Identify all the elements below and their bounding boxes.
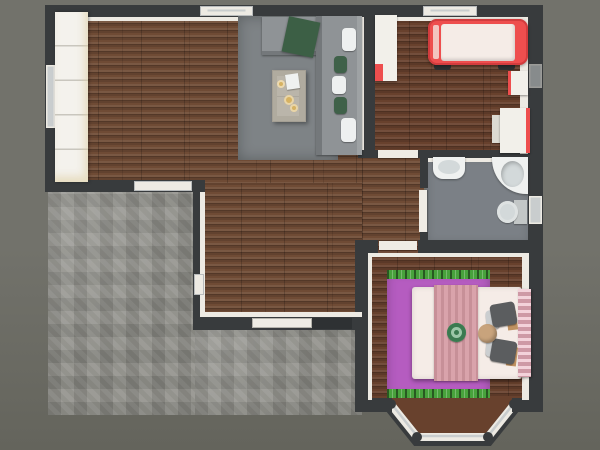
car-bed-windshield bbox=[433, 25, 439, 59]
window-living-west[interactable] bbox=[194, 274, 204, 295]
wall-face-bedroom-north bbox=[368, 253, 522, 257]
wall-hall-bath-north bbox=[420, 150, 428, 188]
wall-face-living-west bbox=[200, 192, 205, 317]
toilet[interactable] bbox=[497, 201, 518, 223]
wall-bedroom-west bbox=[355, 240, 368, 412]
window-top-living-glass bbox=[206, 8, 247, 13]
bed-pillow-dark-1[interactable] bbox=[489, 301, 518, 328]
gold-plate-1[interactable] bbox=[277, 80, 285, 88]
wall-face-living-south bbox=[205, 312, 362, 317]
green-round-decor[interactable] bbox=[447, 323, 466, 342]
car-bed-mattress bbox=[441, 24, 515, 61]
round-cushion[interactable] bbox=[478, 324, 497, 343]
sliding-door-patio-dark-panel[interactable] bbox=[312, 318, 352, 329]
tray[interactable] bbox=[285, 73, 300, 90]
door-master-bedroom[interactable] bbox=[379, 241, 417, 250]
corner-bathtub-basin bbox=[501, 161, 524, 187]
floorplan-scene bbox=[0, 0, 600, 450]
window-top-kids-glass bbox=[429, 8, 471, 13]
sofa-pillow-green-2[interactable] bbox=[334, 97, 347, 114]
door-kids-room[interactable] bbox=[378, 150, 418, 158]
headboard bbox=[518, 289, 531, 377]
bookshelf[interactable] bbox=[55, 12, 88, 182]
sliding-door-patio[interactable] bbox=[252, 318, 312, 328]
door-bathroom[interactable] bbox=[419, 190, 427, 232]
window-left-wall[interactable] bbox=[46, 65, 55, 128]
gold-plate-3[interactable] bbox=[290, 104, 298, 112]
sofa-pillow-white-3[interactable] bbox=[341, 118, 356, 142]
wall-bedroom-south-east bbox=[512, 398, 543, 412]
wall-face-bedroom-west bbox=[368, 253, 372, 400]
nightstand[interactable] bbox=[508, 71, 528, 95]
window-kids-right[interactable] bbox=[529, 64, 542, 88]
bedroom-rug-fringe-top bbox=[387, 270, 490, 279]
desk[interactable] bbox=[500, 108, 530, 153]
window-bathroom-right[interactable] bbox=[529, 196, 542, 224]
bathroom-sink-basin bbox=[438, 160, 460, 174]
sofa-pillow-white-1[interactable] bbox=[342, 28, 356, 51]
bed-pillow-dark-2[interactable] bbox=[489, 338, 518, 365]
wall-bedroom-north-east bbox=[418, 240, 543, 253]
wall-bedroom-south-west bbox=[368, 398, 392, 412]
sofa-pillow-green-1[interactable] bbox=[334, 56, 347, 73]
sofa-pillow-white-2[interactable] bbox=[332, 76, 346, 94]
wardrobe-red-accent bbox=[375, 64, 383, 81]
bedroom-rug-fringe-bottom bbox=[387, 389, 490, 398]
window-patio-wall[interactable] bbox=[134, 181, 192, 191]
